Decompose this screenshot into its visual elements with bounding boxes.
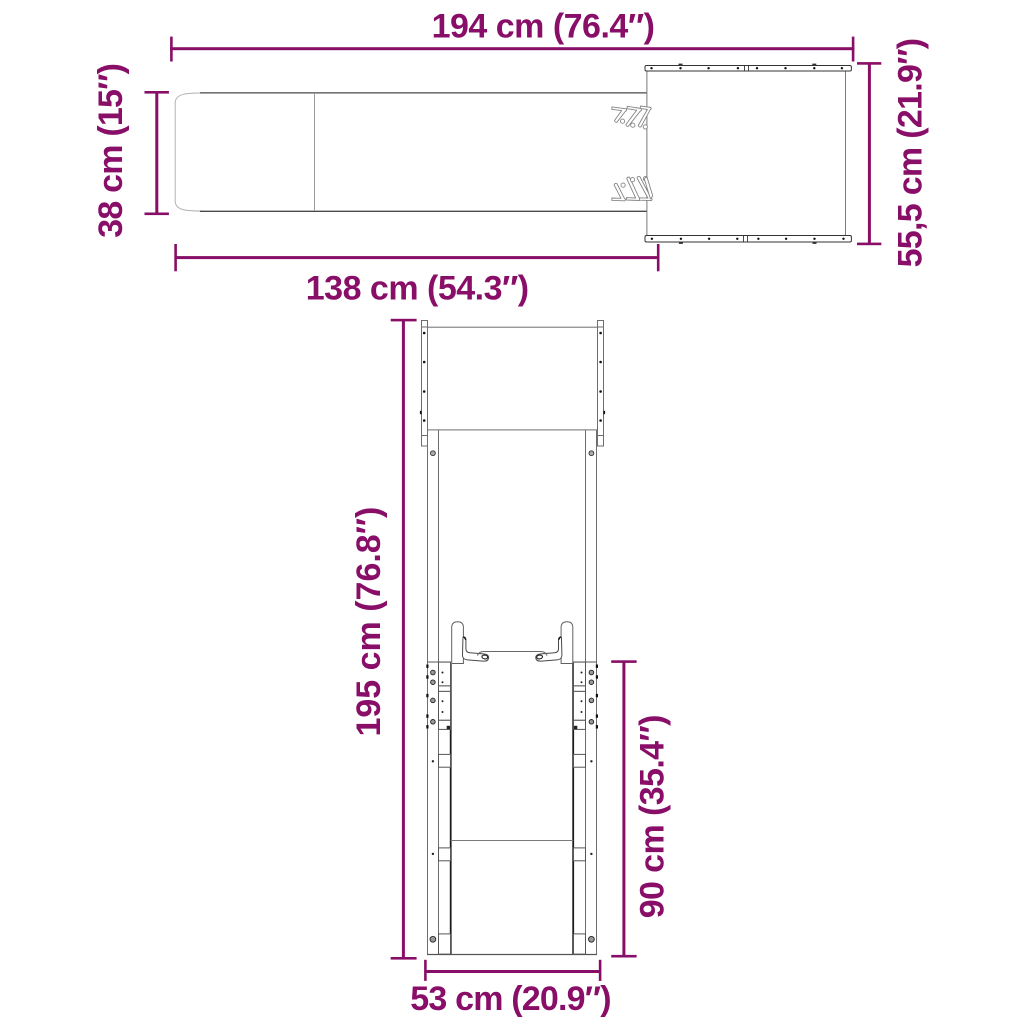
svg-text:90 cm (35.4″): 90 cm (35.4″) bbox=[634, 715, 672, 918]
svg-text:194 cm (76.4″): 194 cm (76.4″) bbox=[432, 7, 655, 45]
svg-text:195 cm (76.8″): 195 cm (76.8″) bbox=[350, 507, 388, 737]
svg-text:55,5 cm (21.9″): 55,5 cm (21.9″) bbox=[892, 39, 930, 268]
svg-text:138 cm (54.3″): 138 cm (54.3″) bbox=[306, 269, 529, 307]
svg-text:53 cm (20.9″): 53 cm (20.9″) bbox=[410, 980, 611, 1018]
svg-text:38 cm (15″): 38 cm (15″) bbox=[92, 64, 130, 238]
